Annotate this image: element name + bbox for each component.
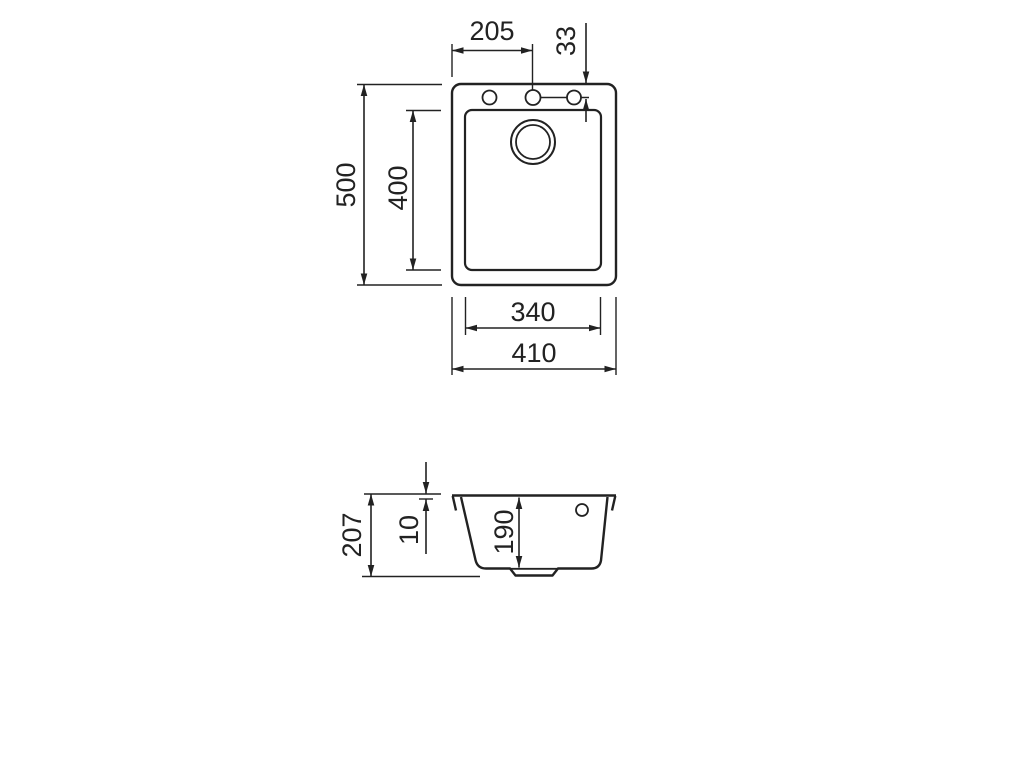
dimension-hole-center-x: 205 xyxy=(452,16,533,90)
dimension-label: 207 xyxy=(337,512,367,557)
dimension-label: 190 xyxy=(489,509,519,554)
faucet-hole-right xyxy=(567,91,581,105)
faucet-hole-left xyxy=(483,91,497,105)
technical-drawing-page: 205 33 500 400 340 xyxy=(0,0,1024,768)
dimension-label: 10 xyxy=(394,515,424,545)
dimension-bowl-depth: 400 xyxy=(383,111,441,271)
dimension-label: 500 xyxy=(331,162,361,207)
rim-lip-left xyxy=(453,496,456,511)
faucet-hole-center xyxy=(526,90,541,105)
dimension-bowl-inner-depth: 190 xyxy=(489,498,519,568)
dimension-label: 33 xyxy=(551,26,581,56)
faucet-hole-section xyxy=(576,504,588,516)
drain-inner-circle xyxy=(516,125,550,159)
rim-lip-right xyxy=(612,496,615,511)
dimension-bowl-width: 340 xyxy=(466,297,601,335)
dimension-label: 410 xyxy=(511,338,556,368)
dimension-label: 400 xyxy=(383,165,413,210)
dimension-label: 340 xyxy=(510,297,555,327)
sink-technical-drawing: 205 33 500 400 340 xyxy=(0,0,1024,768)
sink-top-view: 205 33 500 400 340 xyxy=(331,16,616,375)
sink-section-view: 207 10 190 xyxy=(337,462,616,577)
dimension-label: 205 xyxy=(469,16,514,46)
dimension-rim-height: 10 xyxy=(394,462,433,554)
